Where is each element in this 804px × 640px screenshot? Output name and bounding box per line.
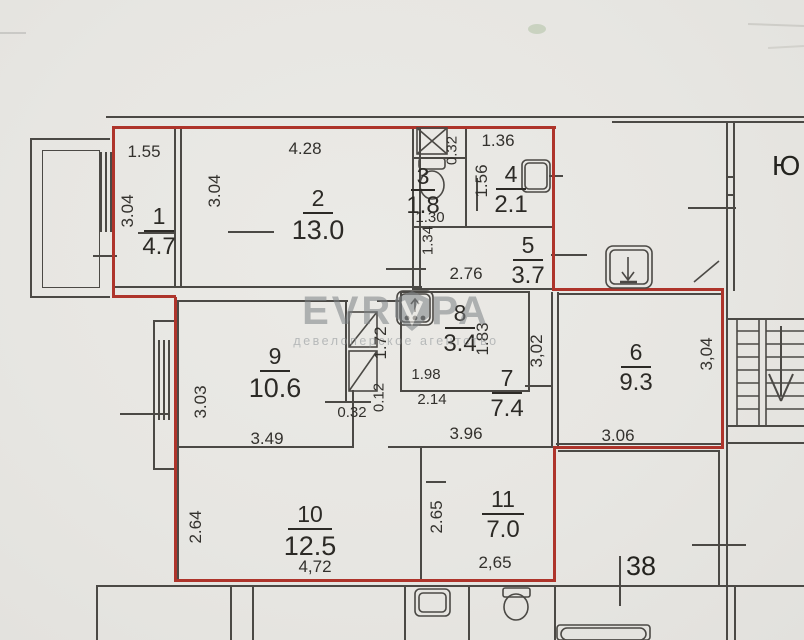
room-number: 5 xyxy=(513,233,544,261)
room-9-label: 9 10.6 xyxy=(238,344,312,402)
room-number: 3 xyxy=(411,164,436,191)
dimension-label: 3.49 xyxy=(245,429,289,449)
sink-icon-2 xyxy=(415,589,450,616)
room-area: 7.4 xyxy=(476,396,538,421)
dimension-label: 3.03 xyxy=(191,380,211,424)
neighbor-apartment-number: 38 xyxy=(626,551,656,582)
dimension-label: 2,65 xyxy=(473,553,517,573)
room-number: 1 xyxy=(144,204,175,232)
room-area: 4.7 xyxy=(124,234,194,259)
room-number: 4 xyxy=(496,162,527,190)
dimension-label: 0.32 xyxy=(444,129,461,173)
room-11-label: 11 7.0 xyxy=(468,487,538,542)
room-5-label: 5 3.7 xyxy=(496,233,560,288)
room-2-label: 2 13.0 xyxy=(270,186,366,244)
dimension-label: 3,02 xyxy=(527,329,547,373)
dimension-label: 1.34 xyxy=(420,219,437,263)
room-area: 13.0 xyxy=(270,216,366,244)
door-swing-icon xyxy=(694,261,719,282)
room-number: 10 xyxy=(288,502,332,530)
dimension-label: 2.65 xyxy=(427,495,447,539)
dimension-label: 3.04 xyxy=(205,169,225,213)
dimension-label: 1.56 xyxy=(472,159,492,203)
stairs-down-arrow-icon xyxy=(769,326,793,401)
dimension-label: 3,04 xyxy=(697,332,717,376)
dimension-label: 3.06 xyxy=(596,426,640,446)
dimension-label: 2.64 xyxy=(186,505,206,549)
dimension-label: 0.32 xyxy=(330,404,374,421)
room-area: 9.3 xyxy=(603,370,669,395)
dimension-label: 1.98 xyxy=(404,366,448,383)
dimension-label: 1.36 xyxy=(476,131,520,151)
sink-icon xyxy=(417,128,447,154)
room-7-label: 7 7.4 xyxy=(476,366,538,421)
dimension-label: 3.96 xyxy=(444,424,488,444)
dimension-label: 4,72 xyxy=(293,557,337,577)
dimension-label: 1.55 xyxy=(122,142,166,162)
room-number: 2 xyxy=(303,186,334,214)
room-10-label: 10 12.5 xyxy=(272,502,348,560)
room-area: 10.6 xyxy=(238,374,312,402)
floor-plan: 1 4.7 2 13.0 3 1.8 4 2.1 5 3.7 6 9.3 7 7… xyxy=(0,0,804,640)
room-number: 9 xyxy=(260,344,291,372)
room-number: 6 xyxy=(621,340,652,368)
room-area: 3.7 xyxy=(496,263,560,288)
dimension-label: 2.14 xyxy=(410,391,454,408)
bathtub-icon xyxy=(557,625,650,640)
toilet-icon-2 xyxy=(503,588,530,620)
room-number: 11 xyxy=(482,487,524,515)
dimension-label: 2.76 xyxy=(444,264,488,284)
dimension-label: 4.28 xyxy=(283,139,327,159)
dimension-label: 3.04 xyxy=(118,189,138,233)
elevator-icon xyxy=(606,246,652,288)
room-number: 7 xyxy=(492,366,523,394)
room-area: 7.0 xyxy=(468,517,538,542)
dimension-label: 1.83 xyxy=(473,317,493,361)
staircase-icon xyxy=(737,320,804,425)
room-number: 8 xyxy=(445,301,476,329)
dimension-label: 1.72 xyxy=(371,321,391,365)
room-6-label: 6 9.3 xyxy=(603,340,669,395)
compass-south-label: Ю xyxy=(772,150,800,182)
